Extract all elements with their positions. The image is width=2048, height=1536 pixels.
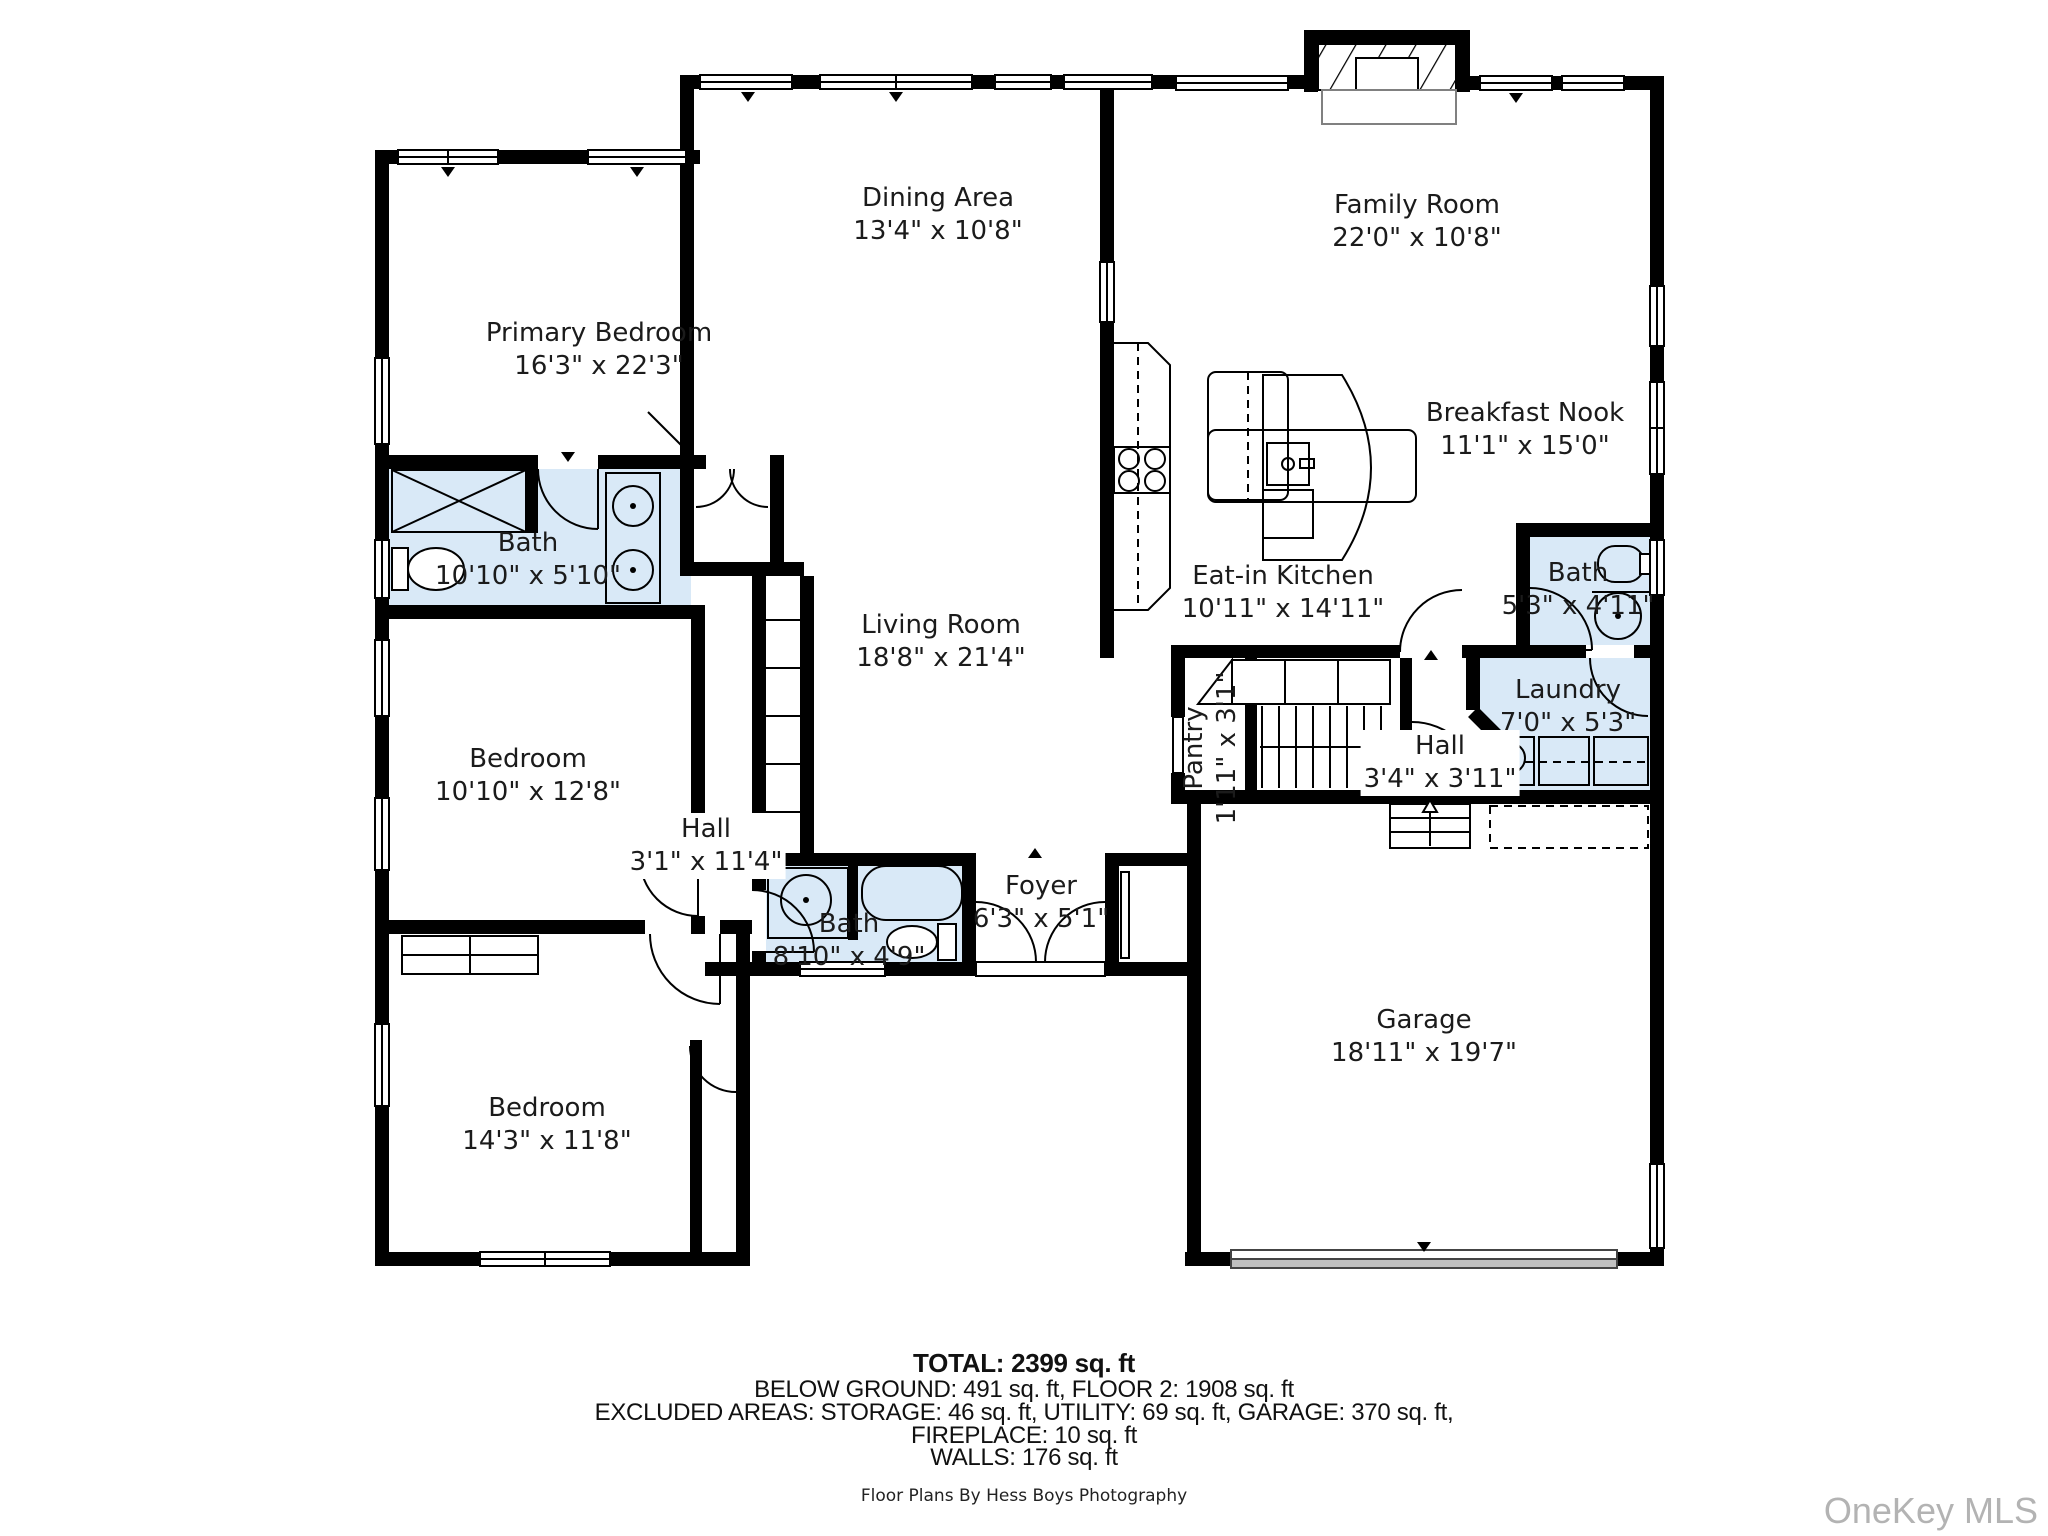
room-label-laundry: Laundry 7'0" x 5'3" xyxy=(1500,674,1636,740)
footer-total: TOTAL: 2399 sq. ft xyxy=(0,1348,2048,1379)
room-dims: 10'10" x 5'10" xyxy=(435,560,621,593)
room-name: Bedroom xyxy=(462,1092,631,1125)
room-name: Laundry xyxy=(1500,674,1636,707)
room-label-eat-in-kitchen: Eat-in Kitchen 10'11" x 14'11" xyxy=(1182,560,1384,626)
room-label-primary-bath: Bath 10'10" x 5'10" xyxy=(435,527,621,593)
footer-walls: WALLS: 176 sq. ft xyxy=(0,1444,2048,1472)
room-dims: 22'0" x 10'8" xyxy=(1332,222,1501,255)
room-label-pantry: Pantry 1'11" x 3'1" xyxy=(1178,672,1244,825)
room-label-foyer: Foyer 6'3" x 5'1" xyxy=(973,870,1109,936)
onekey-mls-watermark: OneKey MLS xyxy=(1824,1490,2038,1532)
garage-door xyxy=(1231,1250,1617,1268)
photographer-credit: Floor Plans By Hess Boys Photography xyxy=(0,1486,2048,1506)
room-dims: 14'3" x 11'8" xyxy=(462,1125,631,1158)
room-dims: 10'10" x 12'8" xyxy=(435,776,621,809)
floor-plan-page: Dining Area 13'4" x 10'8" Family Room 22… xyxy=(0,0,2048,1536)
room-label-living-room: Living Room 18'8" x 21'4" xyxy=(856,609,1025,675)
room-name: Primary Bedroom xyxy=(486,317,712,350)
room-name: Bath xyxy=(1502,557,1655,590)
room-dims: 7'0" x 5'3" xyxy=(1500,707,1636,740)
room-label-breakfast-nook: Breakfast Nook 11'1" x 15'0" xyxy=(1426,397,1624,463)
room-name: Garage xyxy=(1331,1004,1517,1037)
room-label-upper-bath: Bath 5'3" x 4'11" xyxy=(1502,557,1655,623)
room-name: Bath xyxy=(773,908,926,941)
room-dims: 8'10" x 4'9" xyxy=(773,941,926,974)
room-dims: 6'3" x 5'1" xyxy=(973,903,1109,936)
room-dims: 16'3" x 22'3" xyxy=(486,350,712,383)
room-name: Living Room xyxy=(856,609,1025,642)
room-label-dining-area: Dining Area 13'4" x 10'8" xyxy=(853,182,1022,248)
fireplace xyxy=(1318,44,1456,124)
room-dims: 11'1" x 15'0" xyxy=(1426,430,1624,463)
room-name: Pantry xyxy=(1178,672,1211,825)
basement-stairs xyxy=(1390,800,1648,848)
room-dims: 3'4" x 3'11" xyxy=(1364,763,1517,796)
sofa xyxy=(1208,372,1416,502)
room-name: Eat-in Kitchen xyxy=(1182,560,1384,593)
room-label-hall: Hall 3'1" x 11'4" xyxy=(627,813,786,879)
room-dims: 18'8" x 21'4" xyxy=(856,642,1025,675)
room-dims: 3'1" x 11'4" xyxy=(630,846,783,879)
room-label-bottom-bedroom: Bedroom 14'3" x 11'8" xyxy=(462,1092,631,1158)
room-name: Hall xyxy=(1364,730,1517,763)
room-name: Dining Area xyxy=(853,182,1022,215)
room-dims: 18'11" x 19'7" xyxy=(1331,1037,1517,1070)
room-name: Family Room xyxy=(1332,189,1501,222)
room-dims: 10'11" x 14'11" xyxy=(1182,593,1384,626)
room-label-hall-bath: Bath 8'10" x 4'9" xyxy=(773,908,926,974)
room-label-primary-bedroom: Primary Bedroom 16'3" x 22'3" xyxy=(486,317,712,383)
room-dims: 1'11" x 3'1" xyxy=(1211,672,1244,825)
room-name: Bath xyxy=(435,527,621,560)
room-name: Foyer xyxy=(973,870,1109,903)
room-name: Hall xyxy=(630,813,783,846)
floor-plan-drawing xyxy=(0,0,2048,1536)
room-dims: 5'3" x 4'11" xyxy=(1502,590,1655,623)
room-label-middle-bedroom: Bedroom 10'10" x 12'8" xyxy=(435,743,621,809)
room-label-family-room: Family Room 22'0" x 10'8" xyxy=(1332,189,1501,255)
room-name: Breakfast Nook xyxy=(1426,397,1624,430)
room-name: Bedroom xyxy=(435,743,621,776)
room-dims: 13'4" x 10'8" xyxy=(853,215,1022,248)
room-label-upper-hall: Hall 3'4" x 3'11" xyxy=(1361,730,1520,796)
room-label-garage: Garage 18'11" x 19'7" xyxy=(1331,1004,1517,1070)
